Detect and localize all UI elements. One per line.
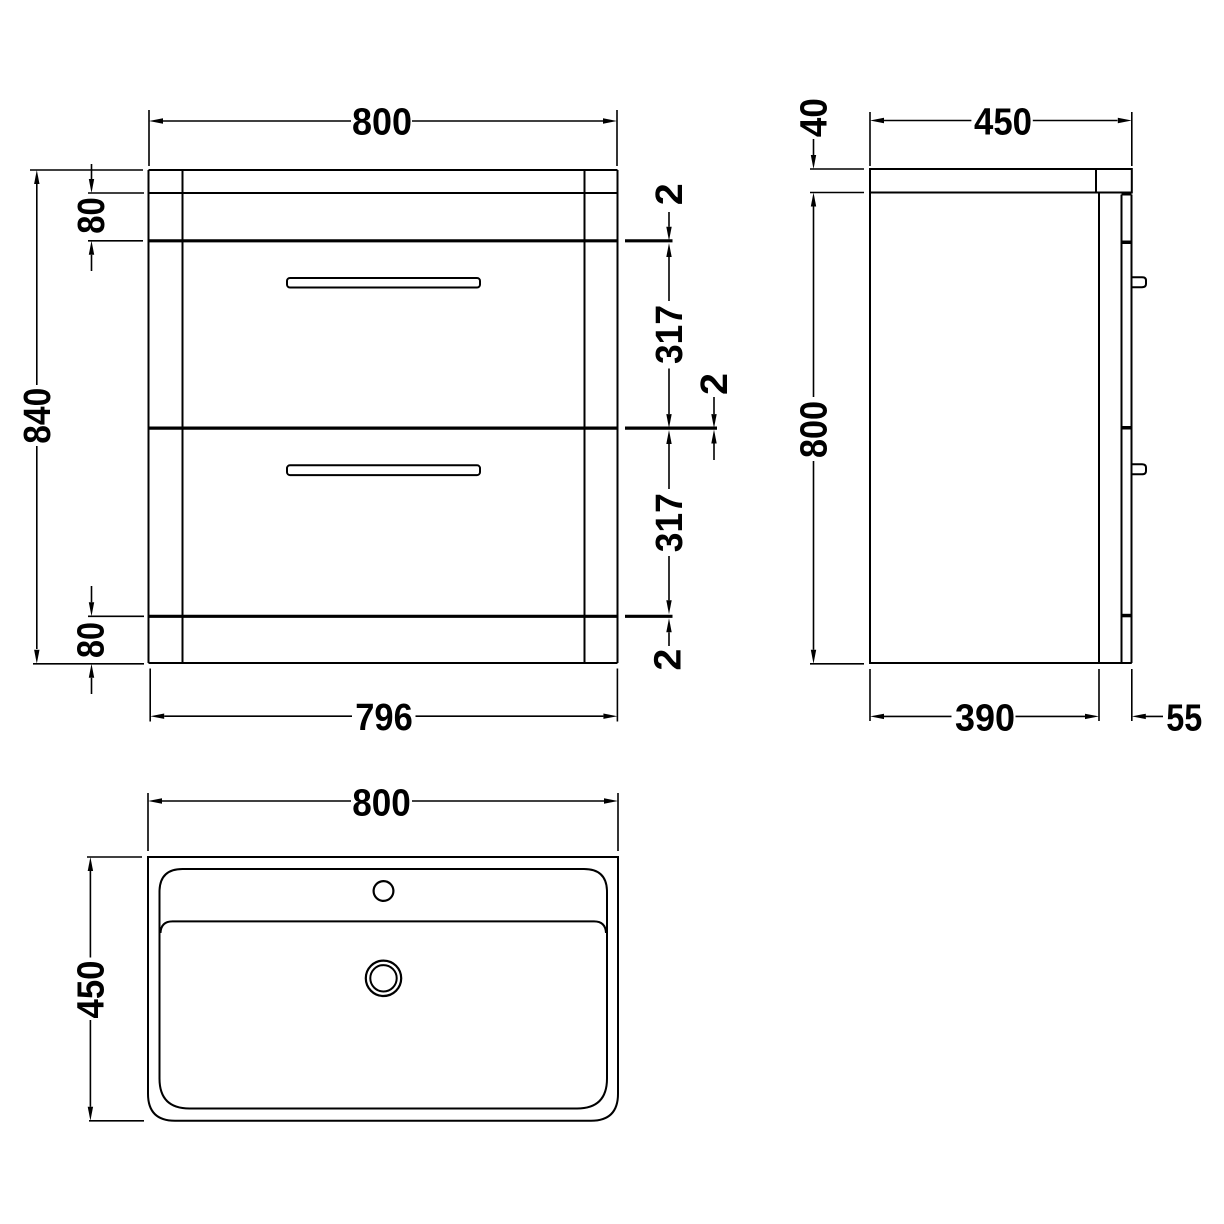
svg-text:2: 2 <box>694 373 736 395</box>
svg-text:796: 796 <box>355 697 413 739</box>
svg-text:2: 2 <box>648 649 690 671</box>
svg-text:390: 390 <box>955 697 1015 739</box>
svg-text:840: 840 <box>17 388 59 444</box>
svg-text:80: 80 <box>71 197 113 234</box>
svg-text:450: 450 <box>71 961 113 1019</box>
svg-text:450: 450 <box>974 101 1032 143</box>
svg-text:2: 2 <box>649 183 691 205</box>
svg-text:55: 55 <box>1166 697 1202 739</box>
svg-text:800: 800 <box>352 101 412 143</box>
svg-text:317: 317 <box>649 305 691 364</box>
svg-text:800: 800 <box>352 782 411 824</box>
svg-text:317: 317 <box>649 493 691 552</box>
svg-text:800: 800 <box>794 401 836 458</box>
svg-text:80: 80 <box>71 622 113 658</box>
svg-text:40: 40 <box>794 98 836 137</box>
